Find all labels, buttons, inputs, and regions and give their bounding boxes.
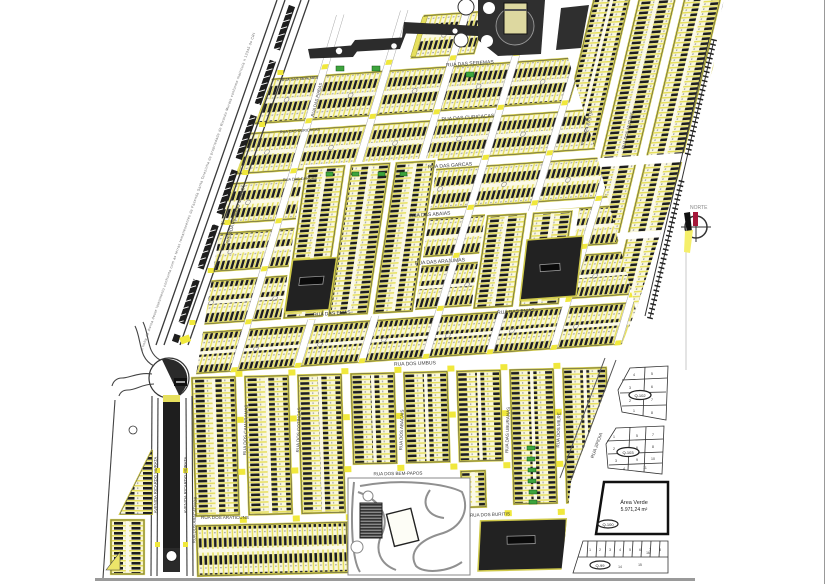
- svg-text:9: 9: [636, 458, 638, 462]
- svg-text:16: 16: [646, 551, 650, 555]
- svg-text:2: 2: [613, 447, 615, 451]
- svg-text:Q-100: Q-100: [602, 522, 614, 527]
- svg-text:1: 1: [633, 409, 635, 413]
- svg-text:RUA DOS ARATICUNS: RUA DOS ARATICUNS: [201, 515, 249, 520]
- svg-text:8: 8: [651, 411, 653, 415]
- svg-text:10: 10: [651, 457, 655, 461]
- svg-text:6: 6: [651, 385, 653, 389]
- svg-text:11: 11: [643, 466, 647, 470]
- svg-text:6: 6: [639, 548, 641, 552]
- svg-text:5: 5: [651, 372, 653, 376]
- svg-text:4: 4: [619, 548, 621, 552]
- svg-text:14: 14: [618, 565, 622, 569]
- svg-text:8: 8: [652, 445, 654, 449]
- svg-text:7: 7: [651, 398, 653, 402]
- svg-text:3: 3: [615, 459, 617, 463]
- svg-text:AVENIDA RICARDO MURATA: AVENIDA RICARDO MURATA: [153, 457, 158, 514]
- svg-text:Q-99: Q-99: [596, 563, 606, 568]
- svg-text:4: 4: [633, 373, 635, 377]
- svg-text:8: 8: [659, 548, 661, 552]
- svg-text:Área Verde: Área Verde: [620, 499, 648, 506]
- svg-text:5: 5: [629, 548, 631, 552]
- svg-text:5.971,24 m²: 5.971,24 m²: [621, 507, 648, 513]
- svg-text:RUA DOS BEM-PAPOS: RUA DOS BEM-PAPOS: [373, 471, 422, 477]
- svg-text:1: 1: [613, 435, 615, 439]
- svg-text:AVENIDA RICARDO MURATA: AVENIDA RICARDO MURATA: [183, 457, 188, 514]
- svg-text:1: 1: [589, 548, 591, 552]
- svg-text:7: 7: [652, 433, 654, 437]
- svg-text:Q-102: Q-102: [634, 393, 646, 398]
- svg-text:15: 15: [638, 563, 642, 567]
- svg-text:4: 4: [623, 467, 625, 471]
- svg-text:NORTE: NORTE: [690, 205, 708, 211]
- svg-text:2: 2: [629, 399, 631, 403]
- svg-text:2: 2: [599, 548, 601, 552]
- svg-text:3: 3: [629, 386, 631, 390]
- svg-text:3: 3: [609, 548, 611, 552]
- svg-text:Q-103: Q-103: [622, 450, 634, 455]
- svg-text:5: 5: [636, 434, 638, 438]
